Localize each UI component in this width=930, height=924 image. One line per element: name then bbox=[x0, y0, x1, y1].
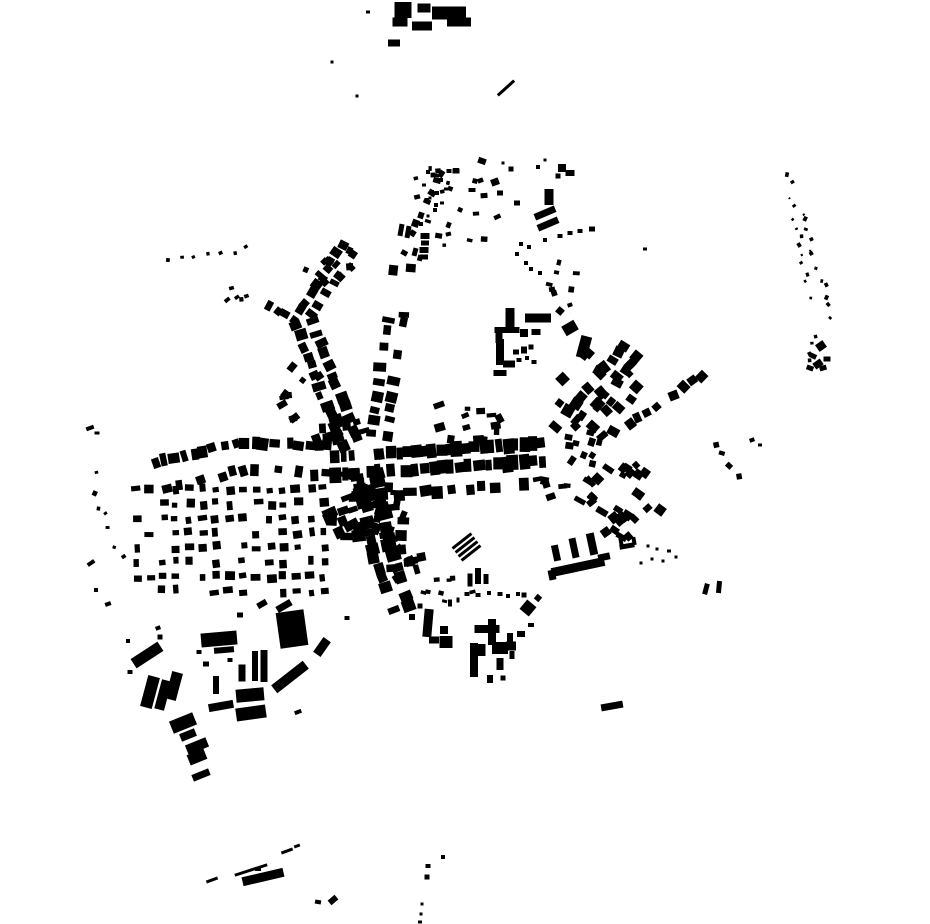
building-footprints-svg bbox=[0, 0, 930, 924]
figure-ground-map bbox=[0, 0, 930, 924]
